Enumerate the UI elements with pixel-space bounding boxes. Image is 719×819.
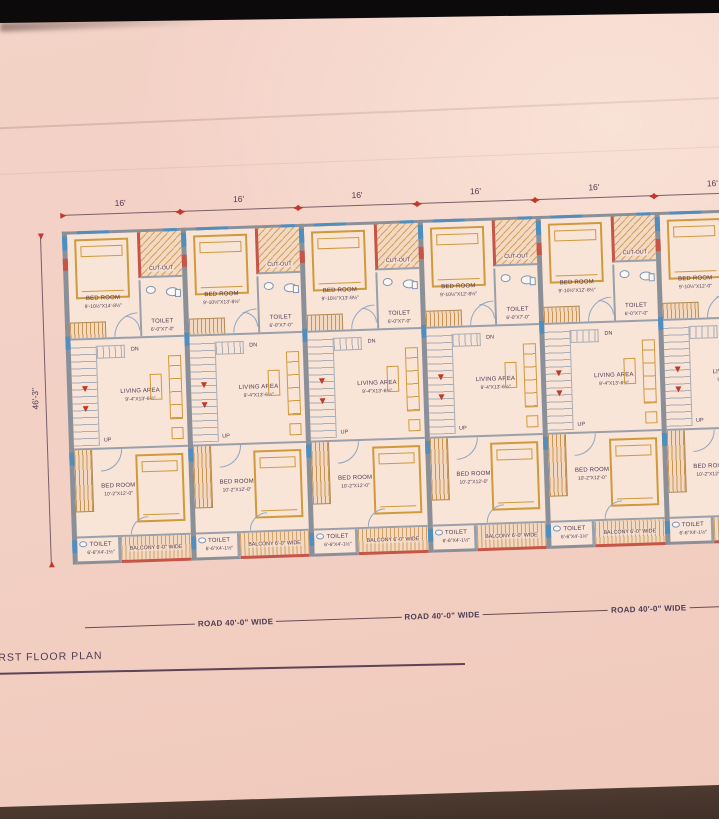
dimension-segment: 16': [61, 202, 180, 216]
cutout-label: CUT-OUT: [266, 261, 293, 268]
dimension-label: 16': [707, 178, 718, 188]
room-dims: 6'-6"X4'-1½": [320, 541, 355, 549]
stair-direction-arrow: [437, 374, 443, 380]
toilet-label: TOILET 6'-6"X4'-1½": [83, 541, 118, 556]
stair-strip: [307, 314, 344, 331]
bed-furniture: [193, 234, 249, 296]
window-segment: [306, 445, 311, 458]
room-dims: 10'-2"X12'-0": [680, 470, 719, 479]
dimension-segment: 16': [653, 182, 719, 196]
dimension-tick: [297, 204, 303, 210]
bedroom-label: BED ROOM 10'-2"X12'-0": [561, 466, 623, 482]
bedroom-label: BED ROOM 10'-2"X12'-0": [206, 478, 268, 494]
window-segment: [302, 329, 307, 342]
cutout-area: CUT-OUT: [492, 219, 538, 266]
wc-icon: [284, 283, 297, 292]
room-dims: 9'-4"X13'-6½": [341, 387, 413, 396]
room-dims: 9'-10½"X13'-8½": [190, 298, 254, 307]
window-segment: [69, 453, 74, 466]
stair-direction-arrow: [200, 382, 206, 388]
window-segment: [421, 325, 426, 338]
road-label: ROAD 40'-0" WIDE: [401, 610, 483, 622]
basin-icon: [500, 274, 510, 282]
cutout-label: CUT-OUT: [503, 253, 530, 260]
unit-top-band: CUT-OUT TOILET 6'-0"X7'-0" BED ROOM 9'-1…: [659, 211, 719, 321]
dimension-tick: [534, 196, 540, 202]
toilet-label: TOILET 6'-0"X7'-0": [378, 310, 420, 326]
dimension-tick: [48, 561, 54, 567]
toilet-room: TOILET 6'-6"X4'-1½": [314, 529, 359, 556]
window-segment: [543, 437, 548, 450]
photo-of-floor-plan: { "plan": { "title": "FIRST FLOOR PLAN",…: [0, 0, 719, 819]
room-dims: 9'-4"X13'-6½": [104, 395, 176, 404]
red-wall-segment: [418, 247, 423, 259]
dimension-tick: [179, 208, 185, 214]
stool-furniture: [526, 415, 538, 427]
window-segment: [72, 540, 77, 553]
stool-furniture: [289, 423, 301, 435]
bed-furniture: [429, 226, 485, 288]
stair-direction-arrow: [320, 398, 326, 404]
window-segment: [536, 221, 541, 235]
room-dims: 9'-10½"X13'-8½": [308, 294, 372, 303]
stool-furniture: [171, 427, 183, 439]
window-segment: [184, 333, 189, 346]
balcony-label: BALCONY 6'-0" WIDE: [247, 540, 302, 548]
toilet-label: TOILET 6'-6"X4'-1½": [202, 537, 237, 552]
dimension-label: 16': [351, 190, 362, 200]
door-arc: [100, 449, 123, 472]
basin-icon: [619, 270, 629, 278]
wc-icon: [521, 275, 534, 284]
staircase-landing: [334, 337, 362, 351]
stair-direction-arrow: [675, 386, 681, 392]
road-line: [483, 610, 608, 615]
sofa-furniture: [404, 347, 419, 411]
stair-direction-arrow: [201, 402, 207, 408]
room-name: LIVING AREA: [696, 367, 719, 377]
basin-icon: [382, 278, 392, 286]
unit-top-band: CUT-OUT TOILET 6'-0"X7'-0" BED ROOM 9'-1…: [185, 227, 302, 337]
stair-strip: [666, 430, 686, 493]
dimension-label: 16': [470, 186, 481, 196]
house-unit: CUT-OUT TOILET 6'-0"X7'-0" BED ROOM 9'-1…: [299, 220, 428, 557]
room-dims: 6'-0"X7'-0": [142, 325, 184, 333]
unit-top-band: CUT-OUT TOILET 6'-0"X7'-0" BED ROOM 9'-1…: [541, 215, 658, 325]
window-segment: [180, 233, 185, 247]
window-segment: [65, 337, 70, 350]
toilet-room: TOILET 6'-6"X4'-1½": [551, 521, 596, 548]
room-dims: 6'-6"X4'-1½": [676, 529, 711, 537]
house-unit: CUT-OUT TOILET 6'-0"X7'-0" BED ROOM 9'-1…: [654, 208, 719, 545]
balcony: BALCONY 6'-0" WIDE: [239, 531, 309, 559]
window-segment: [539, 321, 544, 334]
room-dims: 6'-0"X7'-0": [260, 321, 302, 329]
road-line: [85, 624, 195, 629]
unit-bottom-band: BED ROOM 10'-2"X12'-0": [548, 431, 664, 523]
stool-furniture: [408, 419, 420, 431]
table-furniture: [504, 362, 517, 388]
stair-dn-label: DN: [486, 335, 494, 341]
room-dims: 9'-10½"X14'-8½": [71, 302, 135, 311]
window-segment: [162, 228, 176, 231]
room-dims: 9'-10½"X12'-0": [663, 283, 719, 292]
left-dimension-label: 46'-3": [30, 388, 41, 410]
unit-bottom-band: BED ROOM 10'-2"X12'-0": [193, 443, 309, 535]
toilet-label: TOILET 6'-0"X7'-0": [141, 318, 183, 334]
staircase: [189, 342, 218, 443]
sofa-furniture: [523, 343, 538, 407]
toilet-room: TOILET 6'-0"X7'-0": [138, 279, 184, 336]
window-segment: [657, 317, 662, 330]
cutout-label: CUT-OUT: [622, 249, 649, 256]
floor-plan-drawing: 16' 16' 16' 16' 16' 16' 46'-3" CUT-OUT: [25, 151, 719, 697]
cutout-label: CUT-OUT: [148, 265, 175, 272]
toilet-label: TOILET 6'-6"X4'-1½": [675, 521, 710, 536]
staircase-landing: [215, 341, 243, 355]
table-furniture: [623, 358, 636, 384]
unit-top-band: CUT-OUT TOILET 6'-0"X7'-0" BED ROOM 9'-1…: [67, 231, 184, 341]
door-arc: [367, 508, 386, 527]
cutout-area: CUT-OUT: [373, 223, 419, 270]
balcony-label: BALCONY 6'-0" WIDE: [484, 532, 539, 540]
red-wall-segment: [655, 239, 660, 251]
room-dims: 6'-6"X4'-1½": [557, 533, 592, 541]
room-dims: 9'-4"X13'-6½": [223, 391, 295, 400]
room-dims: 6'-0"X7'-0": [615, 310, 657, 318]
window-segment: [191, 537, 196, 550]
staircase-landing: [689, 325, 717, 339]
stair-strip: [74, 450, 94, 513]
road-label: ROAD 40'-0" WIDE: [608, 603, 690, 615]
cutout-area: CUT-OUT: [136, 231, 182, 278]
unit-middle-band: DN UP LIVING AREA 9'-4"X13'-6½": [426, 325, 543, 439]
bedroom-label: BED ROOM 9'-10½"X12'-0": [663, 275, 719, 291]
red-wall-segment: [181, 255, 186, 267]
balcony: BALCONY 6'-0" WIDE: [713, 515, 719, 543]
toilet-room: TOILET 6'-0"X7'-0": [612, 263, 658, 320]
living-area-label: LIVING AREA 9'-4"X13'-6½": [223, 383, 295, 400]
wc-icon: [402, 279, 415, 288]
toilet-room: TOILET 6'-6"X4'-1½": [195, 533, 240, 560]
toilet-label: TOILET 6'-6"X4'-1½": [438, 529, 473, 544]
stair-strip: [70, 321, 107, 338]
bedroom-label: BED ROOM 10'-2"X12'-0": [443, 470, 505, 486]
road-line: [689, 603, 719, 608]
bed-furniture: [666, 218, 719, 280]
house-unit: CUT-OUT TOILET 6'-0"X7'-0" BED ROOM 9'-1…: [536, 212, 665, 549]
unit-bottom-band: BED ROOM 10'-2"X12'-0": [311, 439, 427, 531]
toilet-room: TOILET 6'-6"X4'-1½": [77, 537, 122, 564]
stair-up-label: UP: [104, 437, 112, 443]
stair-up-label: UP: [459, 425, 467, 431]
cutout-area: CUT-OUT: [255, 227, 301, 274]
window-segment: [427, 529, 432, 542]
room-dims: 6'-0"X7'-0": [497, 314, 539, 322]
toilet-room: TOILET 6'-6"X4'-1½": [669, 517, 714, 544]
camera-dark-band-top: [0, 0, 719, 23]
room-dims: 6'-6"X4'-1½": [83, 549, 118, 557]
living-area-label: LIVING AREA 9'-4"X13'-6½": [341, 379, 413, 396]
stair-direction-arrow: [319, 378, 325, 384]
dimension-tick: [37, 233, 43, 239]
stair-up-label: UP: [577, 422, 585, 428]
toilet-label: TOILET 6'-0"X7'-0": [497, 306, 539, 322]
door-arc: [455, 437, 478, 460]
staircase: [544, 330, 573, 431]
red-wall-segment: [63, 259, 68, 271]
stair-direction-arrow: [438, 394, 444, 400]
stair-direction-arrow: [556, 370, 562, 376]
window-segment: [546, 525, 551, 538]
window-segment: [661, 433, 666, 446]
window-segment: [424, 441, 429, 454]
house-unit: CUT-OUT TOILET 6'-0"X7'-0" BED ROOM 9'-1…: [417, 216, 546, 553]
window-segment: [636, 212, 650, 215]
room-dims: 9'-4"X13'-6½": [578, 379, 650, 388]
unit-balcony-band: TOILET 6'-6"X4'-1½" BALCONY 6'-0" WIDE: [195, 531, 309, 561]
toilet-room: TOILET 6'-6"X4'-1½": [432, 525, 477, 552]
room-dims: 9'-10½"X12'-8½": [427, 290, 491, 299]
stair-direction-arrow: [82, 386, 88, 392]
unit-bottom-band: BED ROOM 10'-2"X12'-0": [429, 435, 545, 527]
dimension-segment: 16': [416, 190, 535, 204]
room-dims: 9'-10½"X12'-8½": [545, 286, 609, 295]
stair-up-label: UP: [341, 429, 349, 435]
window-segment: [188, 449, 193, 462]
stair-dn-label: DN: [368, 338, 376, 344]
road-row: ROAD 40'-0" WIDE ROAD 40'-0" WIDE ROAD 4…: [85, 599, 719, 632]
wc-icon: [165, 287, 178, 296]
staircase: [71, 346, 100, 447]
staircase-landing: [452, 333, 480, 347]
room-dims: 6'-0"X7'-0": [378, 317, 420, 325]
stair-up-label: UP: [222, 433, 230, 439]
bedroom-label: BED ROOM 10'-2"X12'-0": [87, 482, 149, 498]
toilet-room: TOILET 6'-0"X7'-0": [256, 275, 302, 332]
toilet-label: TOILET 6'-6"X4'-1½": [557, 525, 592, 540]
toilet-room: TOILET 6'-0"X7'-0": [493, 267, 539, 324]
stair-up-label: UP: [696, 418, 704, 424]
dimension-tick: [652, 193, 658, 199]
balcony: BALCONY 6'-0" WIDE: [595, 519, 665, 547]
bedroom-label: BED ROOM 9'-10½"X12'-8½": [426, 283, 490, 299]
dimension-segment: 16': [298, 194, 417, 208]
dimension-label: 16': [114, 198, 125, 208]
stair-direction-arrow: [83, 406, 89, 412]
staircase-landing: [97, 345, 125, 359]
window-segment: [309, 533, 314, 546]
balcony: BALCONY 6'-0" WIDE: [121, 535, 191, 563]
door-arc: [249, 512, 268, 531]
bed-furniture: [74, 238, 130, 300]
bedroom-label: BED ROOM 10'-2"X12'-0": [679, 462, 719, 478]
unit-middle-band: DN UP LIVING AREA 9'-4"X13'-6½": [307, 329, 424, 443]
dimension-segment: 16': [179, 198, 298, 212]
dimension-tick: [60, 212, 66, 218]
left-dimension-line: 46'-3": [31, 235, 52, 567]
living-area-label: LIVING AREA 9'-4"X13'-6½": [459, 375, 531, 392]
sofa-furniture: [167, 355, 182, 419]
balcony: BALCONY 6'-0" WIDE: [476, 523, 546, 551]
door-arc: [337, 441, 360, 464]
stair-direction-arrow: [556, 390, 562, 396]
door-arc: [219, 445, 242, 468]
window-segment: [399, 220, 413, 223]
toilet-label: TOILET 6'-6"X4'-1½": [320, 533, 355, 548]
stair-dn-label: DN: [249, 342, 257, 348]
unit-middle-band: DN UP LIVING AREA 9'-4"X13'-6½": [663, 317, 719, 431]
dimension-tick: [415, 200, 421, 206]
unit-balcony-band: TOILET 6'-6"X4'-1½" BALCONY 6'-0" WIDE: [77, 535, 191, 565]
staircase-landing: [570, 329, 598, 343]
stair-dn-label: DN: [131, 346, 139, 352]
window-segment: [62, 237, 67, 251]
unit-middle-band: DN UP LIVING AREA 9'-4"X13'-6½": [544, 321, 661, 435]
bedroom-label: BED ROOM 9'-10½"X12'-8½": [545, 279, 609, 295]
house-unit: CUT-OUT TOILET 6'-0"X7'-0" BED ROOM 9'-1…: [180, 224, 309, 561]
unit-middle-band: DN UP LIVING AREA 9'-4"X13'-6½": [189, 333, 306, 447]
house-unit: CUT-OUT TOILET 6'-0"X7'-0" BED ROOM 9'-1…: [62, 228, 191, 565]
basin-icon: [264, 282, 274, 290]
red-wall-segment: [536, 243, 541, 255]
dimension-label: 16': [233, 194, 244, 204]
toilet-label: TOILET 6'-0"X7'-0": [260, 314, 302, 330]
living-area-label: LIVING AREA 9'-4"X13'-6½": [578, 371, 650, 388]
stool-furniture: [645, 411, 657, 423]
sofa-furniture: [641, 339, 656, 403]
room-dims: 6'-6"X4'-1½": [439, 537, 474, 545]
bedroom-label: BED ROOM 9'-10½"X13'-8½": [189, 290, 253, 306]
stair-strip: [425, 310, 462, 327]
living-area-label: LIVING AREA 9'-4"X13'-6½": [696, 367, 719, 384]
room-dims: 6'-6"X4'-1½": [202, 545, 237, 553]
paper-crease: [0, 96, 719, 129]
bed-furniture: [311, 230, 367, 292]
unit-middle-band: DN UP LIVING AREA 9'-4"X13'-6½": [70, 337, 187, 451]
balcony: BALCONY 6'-0" WIDE: [358, 527, 428, 555]
unit-balcony-band: TOILET 6'-6"X4'-1½" BALCONY 6'-0" WIDE: [314, 527, 428, 557]
door-arc: [130, 516, 149, 535]
sofa-furniture: [286, 351, 301, 415]
red-wall-segment: [300, 251, 305, 263]
balcony-label: BALCONY 6'-0" WIDE: [602, 528, 657, 536]
table-furniture: [149, 374, 162, 400]
unit-balcony-band: TOILET 6'-6"X4'-1½" BALCONY 6'-0" WIDE: [669, 515, 719, 545]
table-furniture: [268, 370, 281, 396]
stair-strip: [188, 317, 225, 334]
stair-dn-label: DN: [604, 331, 612, 337]
window-segment: [664, 521, 669, 534]
window-segment: [654, 217, 659, 231]
dimension-segment: 16': [535, 186, 654, 200]
unit-balcony-band: TOILET 6'-6"X4'-1½" BALCONY 6'-0" WIDE: [432, 523, 546, 553]
road-label: ROAD 40'-0" WIDE: [195, 617, 277, 629]
basin-icon: [145, 286, 155, 294]
window-segment: [281, 224, 295, 227]
toilet-label: TOILET 6'-0"X7'-0": [615, 302, 657, 318]
bedroom-label: BED ROOM 10'-2"X12'-0": [324, 474, 386, 490]
plan-title: FIRST FLOOR PLAN: [0, 650, 103, 664]
stair-strip: [429, 438, 449, 501]
stair-strip: [662, 302, 699, 319]
unit-balcony-band: TOILET 6'-6"X4'-1½" BALCONY 6'-0" WIDE: [551, 519, 665, 549]
unit-bottom-band: BED ROOM 10'-2"X12'-0": [666, 427, 719, 519]
units-row: CUT-OUT TOILET 6'-0"X7'-0" BED ROOM 9'-1…: [62, 208, 719, 564]
stair-direction-arrow: [674, 366, 680, 372]
unit-top-band: CUT-OUT TOILET 6'-0"X7'-0" BED ROOM 9'-1…: [304, 223, 421, 333]
window-segment: [417, 225, 422, 239]
door-arc: [604, 500, 623, 519]
door-arc: [692, 429, 715, 452]
wc-icon: [639, 271, 652, 280]
staircase: [308, 338, 337, 439]
road-line: [276, 617, 401, 622]
bedroom-label: BED ROOM 9'-10½"X14'-8½": [71, 294, 135, 310]
room-dims: 9'-4"X13'-6½": [460, 383, 532, 392]
cutout-area: CUT-OUT: [610, 215, 656, 262]
balcony-label: BALCONY 6'-0" WIDE: [129, 543, 184, 551]
stair-strip: [548, 434, 568, 497]
door-arc: [486, 504, 505, 523]
unit-top-band: CUT-OUT TOILET 6'-0"X7'-0" BED ROOM 9'-1…: [422, 219, 539, 329]
bedroom-label: BED ROOM 9'-10½"X13'-8½": [308, 287, 372, 303]
staircase: [426, 334, 455, 435]
balcony-label: BALCONY 6'-0" WIDE: [366, 536, 421, 544]
dimension-label: 16': [588, 182, 599, 192]
table-furniture: [386, 366, 399, 392]
bed-furniture: [548, 222, 604, 284]
toilet-room: TOILET 6'-0"X7'-0": [375, 271, 421, 328]
top-dimension-row: 16' 16' 16' 16' 16' 16': [61, 182, 719, 216]
staircase: [663, 326, 692, 427]
window-segment: [299, 229, 304, 243]
stair-strip: [544, 306, 581, 323]
cutout-label: CUT-OUT: [385, 257, 412, 264]
door-arc: [574, 433, 597, 456]
stair-strip: [193, 446, 213, 509]
living-area-label: LIVING AREA 9'-4"X13'-6½": [104, 387, 176, 404]
stair-strip: [311, 442, 331, 505]
window-segment: [518, 216, 532, 219]
table-surface: [0, 784, 719, 819]
unit-bottom-band: BED ROOM 10'-2"X12'-0": [74, 447, 190, 539]
